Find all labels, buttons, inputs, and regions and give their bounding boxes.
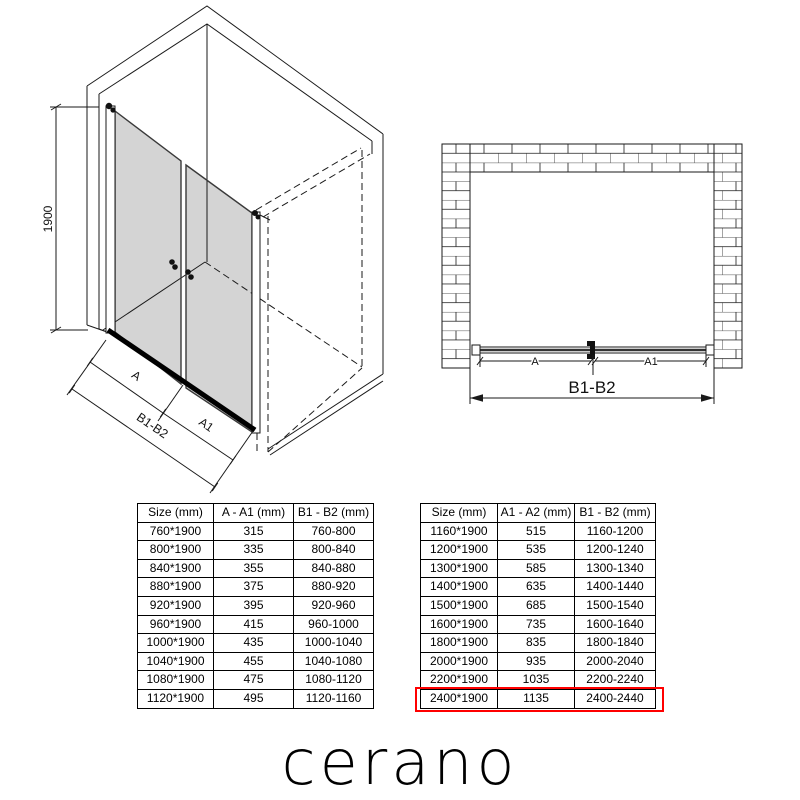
table-row: 1080*19004751080-1120 [138, 671, 374, 690]
table-cell: 435 [214, 634, 294, 653]
table-row: 1500*19006851500-1540 [421, 596, 656, 615]
table-cell: 395 [214, 596, 294, 615]
table-cell: 635 [498, 578, 575, 597]
table-row: 1160*19005151160-1200 [421, 522, 656, 541]
table-cell: 335 [214, 541, 294, 560]
table-row: 800*1900335800-840 [138, 541, 374, 560]
table-row: 1400*19006351400-1440 [421, 578, 656, 597]
table-cell: 1080-1120 [294, 671, 374, 690]
dimension-label-a: A [531, 356, 539, 368]
table-cell: 1800*1900 [421, 634, 498, 653]
brick-wall [442, 144, 742, 368]
column-header: A - A1 (mm) [214, 504, 294, 523]
size-table-large: Size (mm)A1 - A2 (mm)B1 - B2 (mm)1160*19… [420, 503, 656, 709]
table-cell: 1200*1900 [421, 541, 498, 560]
isometric-drawing: 1900 A A1 B1-B2 [0, 0, 400, 500]
table-cell: 1080*1900 [138, 671, 214, 690]
table-cell: 1200-1240 [575, 541, 656, 560]
table-cell: 1600-1640 [575, 615, 656, 634]
table-row: 840*1900355840-880 [138, 559, 374, 578]
table-row: 920*1900395920-960 [138, 596, 374, 615]
table-cell: 355 [214, 559, 294, 578]
table-cell: 735 [498, 615, 575, 634]
table-cell: 1120-1160 [294, 689, 374, 708]
table-row: 960*1900415960-1000 [138, 615, 374, 634]
table-cell: 960*1900 [138, 615, 214, 634]
column-header: Size (mm) [421, 504, 498, 523]
dimension-label-a: A [129, 368, 144, 384]
dimension-label-height: 1900 [41, 205, 55, 232]
table-cell: 1040*1900 [138, 652, 214, 671]
size-table-small: Size (mm)A - A1 (mm)B1 - B2 (mm)760*1900… [137, 503, 374, 709]
table-cell: 2200*1900 [421, 671, 498, 690]
table-cell: 2400-2440 [575, 689, 656, 708]
table-cell: 495 [214, 689, 294, 708]
table-cell: 1500*1900 [421, 596, 498, 615]
table-row: 760*1900315760-800 [138, 522, 374, 541]
table-cell: 920-960 [294, 596, 374, 615]
table-cell: 2000*1900 [421, 652, 498, 671]
table-cell: 1000-1040 [294, 634, 374, 653]
column-header: A1 - A2 (mm) [498, 504, 575, 523]
table-header-row: Size (mm)A - A1 (mm)B1 - B2 (mm) [138, 504, 374, 523]
table-cell: 1600*1900 [421, 615, 498, 634]
table-row: 1200*19005351200-1240 [421, 541, 656, 560]
table-cell: 1400*1900 [421, 578, 498, 597]
table-cell: 1035 [498, 671, 575, 690]
table-cell: 475 [214, 671, 294, 690]
table-row: 880*1900375880-920 [138, 578, 374, 597]
table-cell: 1040-1080 [294, 652, 374, 671]
table-cell: 375 [214, 578, 294, 597]
dimension-label-b1-b2: B1-B2 [568, 378, 615, 397]
table-cell: 415 [214, 615, 294, 634]
table-row: 2000*19009352000-2040 [421, 652, 656, 671]
table-row: 2400*190011352400-2440 [421, 689, 656, 708]
brand-logo: cerano [0, 726, 800, 799]
table-cell: 835 [498, 634, 575, 653]
table-row: 1800*19008351800-1840 [421, 634, 656, 653]
table-cell: 1800-1840 [575, 634, 656, 653]
table-cell: 1400-1440 [575, 578, 656, 597]
table-row: 1040*19004551040-1080 [138, 652, 374, 671]
table-cell: 960-1000 [294, 615, 374, 634]
opening-outline [470, 172, 714, 368]
table-row: 1000*19004351000-1040 [138, 634, 374, 653]
table-cell: 455 [214, 652, 294, 671]
table-cell: 1160-1200 [575, 522, 656, 541]
table-cell: 315 [214, 522, 294, 541]
page: 1900 A A1 B1-B2 [0, 0, 800, 800]
table-cell: 1500-1540 [575, 596, 656, 615]
column-header: Size (mm) [138, 504, 214, 523]
table-cell: 760*1900 [138, 522, 214, 541]
table-cell: 1160*1900 [421, 522, 498, 541]
table-cell: 2000-2040 [575, 652, 656, 671]
table-cell: 535 [498, 541, 575, 560]
table-cell: 1300-1340 [575, 559, 656, 578]
table-row: 1120*19004951120-1160 [138, 689, 374, 708]
table-cell: 760-800 [294, 522, 374, 541]
table-cell: 1135 [498, 689, 575, 708]
table-cell: 2400*1900 [421, 689, 498, 708]
table-cell: 2200-2240 [575, 671, 656, 690]
table-row: 2200*190010352200-2240 [421, 671, 656, 690]
table-row: 1300*19005851300-1340 [421, 559, 656, 578]
table-cell: 840*1900 [138, 559, 214, 578]
dimension-label-a1: A1 [196, 415, 216, 435]
table-cell: 880*1900 [138, 578, 214, 597]
table-cell: 685 [498, 596, 575, 615]
dimension-label-a1: A1 [644, 356, 657, 368]
table-row: 1600*19007351600-1640 [421, 615, 656, 634]
table-cell: 1300*1900 [421, 559, 498, 578]
column-header: B1 - B2 (mm) [575, 504, 656, 523]
table-cell: 585 [498, 559, 575, 578]
table-cell: 515 [498, 522, 575, 541]
table-cell: 1000*1900 [138, 634, 214, 653]
table-cell: 800*1900 [138, 541, 214, 560]
table-cell: 840-880 [294, 559, 374, 578]
front-view-drawing: A A1 B1-B2 [430, 130, 770, 410]
table-cell: 1120*1900 [138, 689, 214, 708]
table-cell: 800-840 [294, 541, 374, 560]
table-cell: 880-920 [294, 578, 374, 597]
table-header-row: Size (mm)A1 - A2 (mm)B1 - B2 (mm) [421, 504, 656, 523]
table-cell: 935 [498, 652, 575, 671]
table-cell: 920*1900 [138, 596, 214, 615]
column-header: B1 - B2 (mm) [294, 504, 374, 523]
